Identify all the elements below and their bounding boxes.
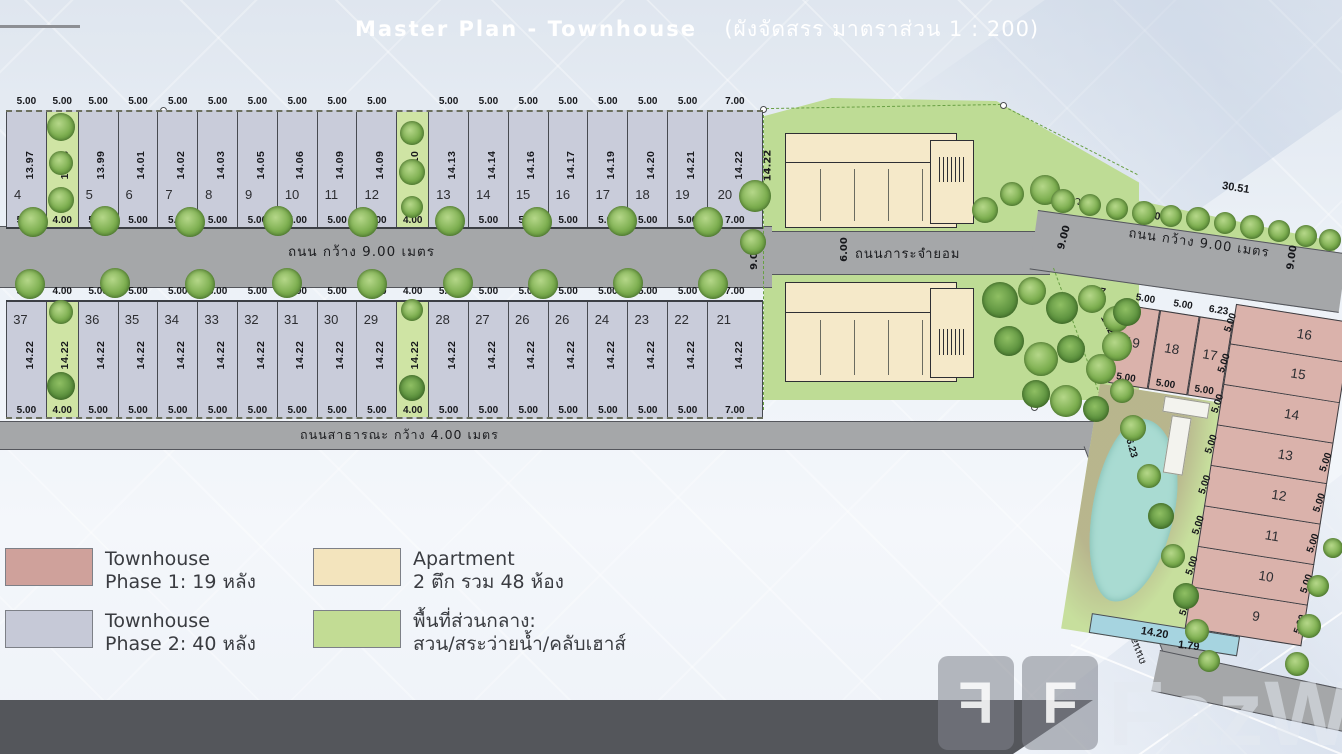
lot-bottom-dim: 5.00 <box>327 405 346 416</box>
lot-cell: 5.0014.22275.00 <box>468 302 508 417</box>
lot-depth-dim: 14.22 <box>605 341 617 370</box>
lot-number: 29 <box>364 312 378 327</box>
lot-depth-dim: 14.01 <box>135 151 147 180</box>
lot-depth-dim: 14.05 <box>255 151 267 180</box>
legend-line2: สวน/สระว่ายน้ำ/คลับเฮาส์ <box>413 633 626 656</box>
lot-bottom-dim: 5.00 <box>128 405 147 416</box>
lot-depth-dim: 14.22 <box>24 341 36 370</box>
lot-depth-dim: 14.22 <box>733 151 745 180</box>
lot-depth-dim: 14.22 <box>645 341 657 370</box>
road-easement-label: ถนนภาระจำยอม <box>855 243 960 264</box>
page-title-main: Master Plan - Townhouse <box>355 17 697 41</box>
tree-icon <box>522 207 552 237</box>
lot-top-dim: 5.00 <box>678 286 697 297</box>
tree-icon <box>528 269 558 299</box>
lot-cell: 5.0014.22245.00 <box>587 302 627 417</box>
tree-icon <box>1050 385 1082 417</box>
phase2-row-bottom: 5.0014.22375.004.0014.224.005.0014.22365… <box>6 300 763 419</box>
tree-icon <box>357 269 387 299</box>
lot-number: 33 <box>204 312 218 327</box>
tree-icon <box>443 268 473 298</box>
lot-top-dim: 5.00 <box>248 286 267 297</box>
lot-number: 37 <box>13 312 27 327</box>
lot-number: 16 <box>556 187 570 202</box>
lot-cell: 5.0014.20185.00 <box>627 112 667 227</box>
tree-icon <box>613 268 643 298</box>
lot-bottom-dim: 5.00 <box>479 405 498 416</box>
tree-icon <box>740 229 766 255</box>
tree-icon <box>1297 614 1321 638</box>
tree-icon <box>1132 201 1156 225</box>
lot-top-dim: 5.00 <box>128 286 147 297</box>
lot-cell: 5.0014.22355.00 <box>118 302 158 417</box>
tree-icon <box>18 207 48 237</box>
lot-depth-dim: 14.22 <box>685 341 697 370</box>
tree-icon <box>1268 220 1290 242</box>
tree-icon <box>185 269 215 299</box>
lot-top-dim: 5.00 <box>327 96 346 107</box>
tree-icon <box>399 375 425 401</box>
tree-icon <box>401 196 423 218</box>
lot-number: 36 <box>85 312 99 327</box>
lot-top-dim: 7.00 <box>725 286 744 297</box>
legend-label-common-area: พื้นที่ส่วนกลาง: สวน/สระว่ายน้ำ/คลับเฮาส… <box>413 610 626 656</box>
phase2-row-top: 5.0013.9745.005.0013.984.005.0013.9955.0… <box>6 110 763 229</box>
tree-icon <box>1106 198 1128 220</box>
lot-top-dim: 5.00 <box>128 96 147 107</box>
lot-number: 14 <box>1283 406 1300 423</box>
lot-bottom-dim: 5.00 <box>638 215 657 226</box>
lot-number: 32 <box>244 312 258 327</box>
tree-icon <box>1079 194 1101 216</box>
lot-bottom-dim: 4.00 <box>53 215 72 226</box>
lot-number: 15 <box>1290 366 1307 383</box>
tree-icon <box>1057 335 1085 363</box>
lot-number: 12 <box>1270 487 1287 504</box>
lot-number: 4 <box>14 187 21 202</box>
lot-number: 26 <box>515 312 529 327</box>
lot-depth-dim: 14.21 <box>685 151 697 180</box>
lot-top-dim: 5.00 <box>678 96 697 107</box>
legend-swatch-apartment <box>313 548 401 586</box>
tree-icon <box>263 206 293 236</box>
tree-icon <box>1185 619 1209 643</box>
lot-depth-dim: 14.22 <box>409 341 421 370</box>
lot-depth-dim: 14.22 <box>374 341 386 370</box>
tree-icon <box>739 180 771 212</box>
tree-icon <box>1173 583 1199 609</box>
lot-depth-dim: 14.22 <box>525 341 537 370</box>
lot-bottom-dim: 5.00 <box>208 405 227 416</box>
legend-line2: Phase 2: 40 หลัง <box>105 633 256 656</box>
lot-bottom-dim: 5.00 <box>678 405 697 416</box>
tree-icon <box>607 206 637 236</box>
apartment-annex-south <box>930 288 974 378</box>
road-public-bottom-label: ถนนสาธารณะ กว้าง 4.00 เมตร <box>300 425 499 445</box>
lot-cell: 5.0014.09115.00 <box>317 112 357 227</box>
lot-depth-dim: 14.20 <box>645 151 657 180</box>
tree-icon <box>1137 464 1161 488</box>
road-main-label: ถนน กว้าง 9.00 เมตร <box>288 240 435 262</box>
lot-depth-dim: 14.09 <box>374 151 386 180</box>
tree-icon <box>1120 415 1146 441</box>
lot-depth-dim: 14.09 <box>334 151 346 180</box>
lot-cell: 5.0014.0385.00 <box>197 112 237 227</box>
lot-depth-dim: 14.17 <box>565 151 577 180</box>
page-title-sub: (ผังจัดสรร มาตราส่วน 1 : 200) <box>724 17 1039 41</box>
legend-item-common-area: พื้นที่ส่วนกลาง: สวน/สระว่ายน้ำ/คลับเฮาส… <box>313 610 626 656</box>
lot-cell: 5.0014.22315.00 <box>277 302 317 417</box>
lot-number: 12 <box>364 187 378 202</box>
lot-depth-dim: 14.06 <box>294 151 306 180</box>
tree-icon <box>1198 650 1220 672</box>
lot-top-dim: 5.00 <box>88 96 107 107</box>
tree-icon <box>90 206 120 236</box>
lot-cell: 5.0014.22375.00 <box>6 302 46 417</box>
lot-bottom-dim: 5.00 <box>439 405 458 416</box>
lot-cell: 5.0014.22265.00 <box>508 302 548 417</box>
tree-icon <box>272 268 302 298</box>
lot-depth-dim: 14.22 <box>486 341 498 370</box>
tree-icon <box>1148 503 1174 529</box>
lot-bottom-dim: 5.00 <box>519 405 538 416</box>
lot-bottom-dim: 5.00 <box>17 405 36 416</box>
lot-number: 13 <box>436 187 450 202</box>
lot-top-dim: 7.00 <box>725 96 744 107</box>
tree-icon <box>1323 538 1342 558</box>
lot-top-dim: 5.00 <box>248 96 267 107</box>
lot-number: 15 <box>516 187 530 202</box>
lot-number: 10 <box>285 187 299 202</box>
bottom-dim: 14.20 <box>1140 625 1169 641</box>
page-title: Master Plan - Townhouse (ผังจัดสรร มาตรา… <box>355 13 1039 46</box>
lot-number: 6 <box>126 187 133 202</box>
lot-depth-dim: 14.03 <box>215 151 227 180</box>
lot-number: 9 <box>1251 609 1261 625</box>
tree-icon <box>972 197 998 223</box>
legend-swatch-common-area <box>313 610 401 648</box>
lot-top-dim: 5.00 <box>519 96 538 107</box>
tree-icon <box>48 187 74 213</box>
lot-bottom-dim: 5.00 <box>479 215 498 226</box>
tree-icon <box>1186 207 1210 231</box>
lot-number: 19 <box>675 187 689 202</box>
lot-number: 23 <box>635 312 649 327</box>
lot-depth-dim: 13.99 <box>95 151 107 180</box>
legend-line1: Apartment <box>413 548 564 571</box>
legend-label-townhouse-phase2: Townhouse Phase 2: 40 หลัง <box>105 610 256 656</box>
lot-bottom-dim: 5.00 <box>367 405 386 416</box>
lot-depth-dim: 13.97 <box>24 151 36 180</box>
lot-top-dim: 5.00 <box>17 96 36 107</box>
lot-depth-dim: 14.22 <box>215 341 227 370</box>
lot-number: 18 <box>1163 340 1180 357</box>
lot-depth-dim: 14.22 <box>294 341 306 370</box>
lot-number: 16 <box>1296 326 1313 343</box>
lot-number: 27 <box>475 312 489 327</box>
tree-icon <box>1240 215 1264 239</box>
lot-bottom-dim: 5.00 <box>128 215 147 226</box>
lot-bottom-dim: 5.00 <box>168 405 187 416</box>
title-bar-rule <box>0 25 80 28</box>
legend-line1: Townhouse <box>105 610 256 633</box>
lot-bottom-dim: 4.00 <box>53 405 72 416</box>
lot-depth-dim: 14.22 <box>59 341 71 370</box>
title-bar <box>0 700 1342 754</box>
lot-number: 35 <box>125 312 139 327</box>
lot-top-dim: 5.00 <box>479 286 498 297</box>
legend-label-apartment: Apartment 2 ตึก รวม 48 ห้อง <box>413 548 564 594</box>
lot-bottom-dim: 4.00 <box>403 405 422 416</box>
lot-depth-dim: 14.22 <box>255 341 267 370</box>
garden-dim-outer: 30.51 <box>1221 180 1250 196</box>
legend-item-apartment: Apartment 2 ตึก รวม 48 ห้อง <box>313 548 564 594</box>
lot-depth-dim: 14.19 <box>605 151 617 180</box>
lot-cell: 5.0014.22325.00 <box>237 302 277 417</box>
lot-cell: 5.0014.22235.00 <box>627 302 667 417</box>
lot-depth-dim: 14.16 <box>525 151 537 180</box>
tree-icon <box>1051 189 1075 213</box>
lot-bottom-dim: 5.00 <box>208 215 227 226</box>
lot-number: 18 <box>635 187 649 202</box>
tree-icon <box>982 282 1018 318</box>
legend-swatch-townhouse-phase1 <box>5 548 93 586</box>
tree-icon <box>400 121 424 145</box>
lot-top-dim: 5.00 <box>208 96 227 107</box>
lot-cell: 5.0014.22225.00 <box>667 302 707 417</box>
tree-icon <box>49 151 73 175</box>
tree-icon <box>1000 182 1024 206</box>
lot-number: 26 <box>555 312 569 327</box>
tree-icon <box>1078 285 1106 313</box>
lot-top-dim: 5.00 <box>367 96 386 107</box>
lot-bottom-dim: 5.00 <box>1194 383 1215 397</box>
lot-cell: 5.0014.22265.00 <box>548 302 588 417</box>
lot-top-dim: 5.00 <box>638 96 657 107</box>
lot-number: 21 <box>717 312 731 327</box>
lot-number: 17 <box>1201 346 1218 363</box>
legend-label-townhouse-phase1: Townhouse Phase 1: 19 หลัง <box>105 548 256 594</box>
lot-depth-dim: 14.22 <box>95 341 107 370</box>
legend-line1: Townhouse <box>105 548 256 571</box>
lot-number: 14 <box>476 187 490 202</box>
lot-depth-dim: 14.22 <box>446 341 458 370</box>
road-easement-width-dim: 6.00 <box>839 237 850 262</box>
lot-depth-dim: 14.22 <box>175 341 187 370</box>
lot-cell: 7.0014.22217.00 <box>707 302 763 417</box>
lot-number: 7 <box>165 187 172 202</box>
lot-number: 24 <box>595 312 609 327</box>
lot-top-dim: 5.00 <box>558 286 577 297</box>
lot-top-dim: 5.00 <box>439 96 458 107</box>
lot-number: 30 <box>324 312 338 327</box>
tree-icon <box>15 269 45 299</box>
tree-icon <box>348 207 378 237</box>
lot-top-dim: 5.00 <box>168 96 187 107</box>
parcel-boundary-dashed <box>763 110 764 410</box>
lot-top-dim: 5.00 <box>327 286 346 297</box>
lot-depth-dim: 14.22 <box>135 341 147 370</box>
lot-top-dim: 5.00 <box>53 96 72 107</box>
tree-icon <box>1161 544 1185 568</box>
tree-icon <box>1046 292 1078 324</box>
legend-line2: 2 ตึก รวม 48 ห้อง <box>413 571 564 594</box>
lot-bottom-dim: 5.00 <box>558 215 577 226</box>
legend-swatch-townhouse-phase2 <box>5 610 93 648</box>
lot-number: 34 <box>165 312 179 327</box>
tree-icon <box>47 372 75 400</box>
tree-icon <box>1307 575 1329 597</box>
lot-top-dim: 5.00 <box>479 96 498 107</box>
lot-number: 10 <box>1257 568 1274 585</box>
tree-icon <box>698 269 728 299</box>
tree-icon <box>1083 396 1109 422</box>
lot-depth-dim: 14.22 <box>565 341 577 370</box>
lot-depth-dim: 14.22 <box>334 341 346 370</box>
tree-icon <box>1160 205 1182 227</box>
lot-number: 8 <box>205 187 212 202</box>
boundary-peg <box>1000 102 1007 109</box>
legend-item-townhouse-phase2: Townhouse Phase 2: 40 หลัง <box>5 610 256 656</box>
lot-top-dim: 5.00 <box>558 96 577 107</box>
tree-icon <box>1018 277 1046 305</box>
legend-item-townhouse-phase1: Townhouse Phase 1: 19 หลัง <box>5 548 256 594</box>
lot-number: 20 <box>718 187 732 202</box>
lot-bottom-dim: 7.00 <box>725 215 744 226</box>
tree-icon <box>435 206 465 236</box>
legend-line1: พื้นที่ส่วนกลาง: <box>413 610 626 633</box>
lot-depth-dim: 14.02 <box>175 151 187 180</box>
master-plan-canvas: ถนน กว้าง 9.00 เมตร 9.00 14.22 ถนนภาระจำ… <box>0 0 1342 754</box>
lot-bottom-dim: 5.00 <box>598 405 617 416</box>
lot-bottom-dim: 5.00 <box>558 405 577 416</box>
tree-icon <box>1285 652 1309 676</box>
lot-cell: 5.0014.22345.00 <box>157 302 197 417</box>
lot-number: 13 <box>1277 447 1294 464</box>
lot-bottom-dim: 7.00 <box>725 405 744 416</box>
lot-number: 31 <box>284 312 298 327</box>
lot-cell: 5.0014.17165.00 <box>548 112 588 227</box>
lot-bottom-dim: 5.00 <box>248 405 267 416</box>
tree-icon <box>693 207 723 237</box>
lot-top-dim: 5.00 <box>598 96 617 107</box>
tree-icon <box>1319 229 1341 251</box>
tree-icon <box>1295 225 1317 247</box>
lot-number: 5 <box>86 187 93 202</box>
lot-cell: 5.0014.22285.00 <box>428 302 468 417</box>
lot-cell: 5.0014.14145.00 <box>468 112 508 227</box>
lot-cell: 5.0014.22335.00 <box>197 302 237 417</box>
tree-icon <box>1102 331 1132 361</box>
lot-top-dim: 4.00 <box>403 286 422 297</box>
tree-icon <box>1214 212 1236 234</box>
tree-icon <box>47 113 75 141</box>
tree-icon <box>175 207 205 237</box>
lot-number: 17 <box>595 187 609 202</box>
lot-bottom-dim: 5.00 <box>327 215 346 226</box>
lot-number: 9 <box>245 187 252 202</box>
tree-icon <box>1024 342 1058 376</box>
lot-bottom-dim: 5.00 <box>1155 377 1176 391</box>
lot-cell: 5.0014.22295.00 <box>356 302 396 417</box>
lot-top-dim: 4.00 <box>53 286 72 297</box>
road-public-bottom <box>0 421 1105 450</box>
tree-icon <box>399 159 425 185</box>
lot-depth-dim: 14.13 <box>446 151 458 180</box>
lot-bottom-dim: 5.00 <box>88 405 107 416</box>
lot-depth-dim: 14.22 <box>733 341 745 370</box>
tree-icon <box>401 299 423 321</box>
band-top-dim: 5.00 <box>1172 298 1193 312</box>
tree-icon <box>49 300 73 324</box>
tree-icon <box>1110 379 1134 403</box>
apartment-annex-north <box>930 140 974 224</box>
band-top-dim: 6.23 <box>1208 304 1229 318</box>
lot-depth-dim: 14.14 <box>486 151 498 180</box>
tree-icon <box>1022 380 1050 408</box>
tree-icon <box>994 326 1024 356</box>
lot-cell: 5.0014.22365.00 <box>78 302 118 417</box>
lot-number: 11 <box>1264 528 1280 545</box>
legend-line2: Phase 1: 19 หลัง <box>105 571 256 594</box>
tree-icon <box>1113 298 1141 326</box>
lot-top-dim: 5.00 <box>288 96 307 107</box>
lot-bottom-dim: 5.00 <box>288 405 307 416</box>
lot-cell: 5.0014.22305.00 <box>317 302 357 417</box>
lot-number: 11 <box>325 187 339 202</box>
lot-number: 22 <box>674 312 688 327</box>
lot-cell: 5.0014.0165.00 <box>118 112 158 227</box>
lot-bottom-dim: 5.00 <box>638 405 657 416</box>
lot-number: 28 <box>435 312 449 327</box>
tree-icon <box>100 268 130 298</box>
